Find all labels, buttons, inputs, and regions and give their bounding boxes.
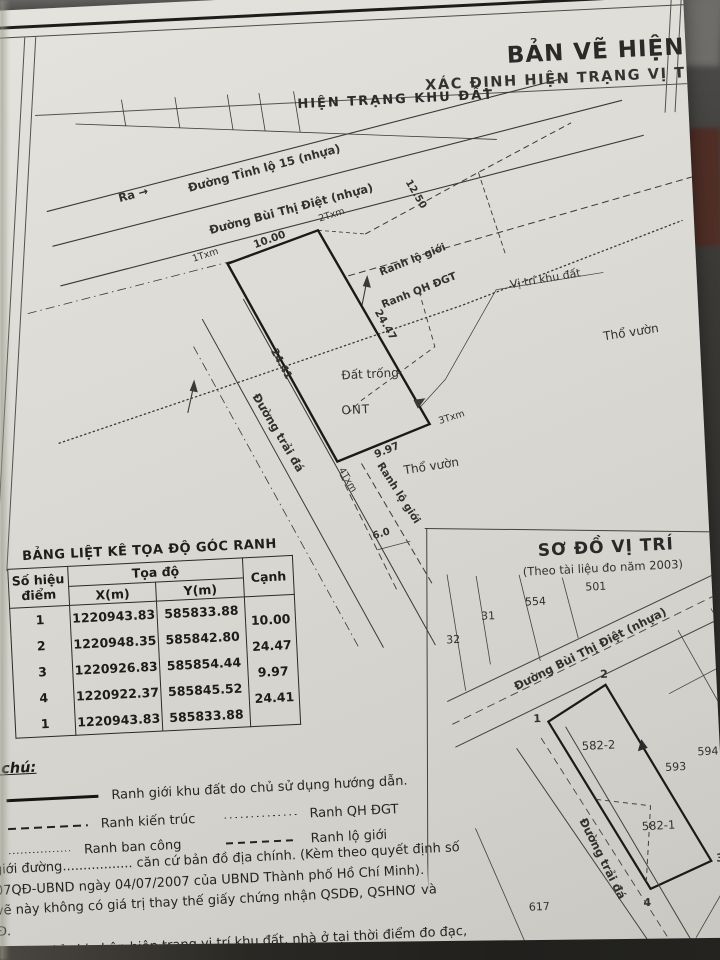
ranh-lo-gioi-label-top: Ranh lộ giới	[378, 241, 448, 278]
dashed-line-swatch	[8, 824, 88, 830]
col-header-edge: Cạnh	[243, 555, 295, 596]
ranh-qh-dgt-label: Ranh QH ĐGT	[380, 270, 459, 311]
map-trai-da-centerline	[541, 732, 684, 960]
legend-item-qh-dgt: Ranh QH ĐGT	[224, 800, 441, 826]
col-header-point: Số hiệu điểm	[8, 566, 69, 608]
plot-corner-1-label: 1Txm	[191, 246, 220, 265]
ont-label: ONT	[341, 402, 370, 417]
corner2-extension	[318, 228, 365, 236]
dim-bottom: 9.97	[373, 440, 402, 461]
direction-arrow-right	[360, 275, 372, 306]
street-label-bui-thi-diet: Đường Bùi Thị Điệt (nhựa)	[208, 180, 375, 237]
map-street-upper	[441, 570, 720, 702]
street-label-tinh-lo-15: Đường Tỉnh lộ 15 (nhựa)	[186, 141, 341, 195]
map-plot-boundary	[547, 680, 713, 893]
long-dash-line-swatch	[226, 839, 298, 845]
map-trai-da-label: Đường trải đá	[576, 816, 629, 902]
tho-vuon-label-right: Thổ vườn	[601, 321, 659, 344]
photo-frame: BẢN VẼ HIỆN XÁC ĐỊNH HIỆN TRẠNG VỊ T HIỆ…	[0, 0, 720, 960]
setback-branch	[478, 171, 505, 255]
ranh-qh-dgt-line	[50, 221, 692, 444]
edge-value: 9.97	[248, 663, 297, 680]
dotted-line-swatch	[225, 814, 297, 819]
street-label-trai-da: Đường trải đá	[250, 391, 308, 475]
dim-right: 24.47	[372, 307, 399, 342]
dat-trong-label: Đất trống	[341, 366, 399, 383]
parcel-582-1-label: 582-1	[641, 818, 675, 834]
map-corner-2: 2	[600, 668, 608, 681]
legend-heading: Ghi chú:	[0, 740, 439, 779]
document-paper: BẢN VẼ HIỆN XÁC ĐỊNH HIỆN TRẠNG VỊ T HIỆ…	[0, 0, 720, 960]
map-corner-4: 4	[643, 896, 652, 909]
edge-value: 24.41	[250, 689, 299, 706]
map-street-label: Đường Bùi Thị Điệt (nhựa)	[512, 605, 669, 694]
dim-setback: 12.50	[403, 178, 429, 211]
background-left-edge	[0, 0, 10, 960]
parcel-32-label: 32	[446, 633, 461, 647]
coords-table: Số hiệu điểm Tọa độ Cạnh X(m) Y(m) 1 122…	[7, 555, 301, 739]
edge-value: 10.00	[246, 611, 295, 628]
parcel-501-label: 501	[585, 580, 607, 594]
parcel-617-label: 617	[529, 900, 551, 914]
map-corner-1: 1	[533, 712, 541, 725]
parcel-582-2-label: 582-2	[581, 737, 615, 753]
road-line-3	[54, 135, 649, 286]
tho-vuon-label-bottom: Thổ vườn	[402, 455, 460, 478]
parcel-ticks	[119, 73, 301, 141]
parcel-554-label: 554	[525, 595, 547, 609]
vi-tri-leader-line	[415, 272, 610, 406]
site-plan-title: HIỆN TRẠNG KHU ĐẤT	[297, 85, 495, 113]
vi-tri-khu-dat-label: Vị trí khu đất	[509, 266, 582, 291]
location-map-title: SƠ ĐỒ VỊ TRÍ	[537, 530, 674, 561]
legend-item-kien-truc: Ranh kiến trúc	[8, 811, 225, 837]
parcel-593-label: 593	[665, 760, 687, 774]
edge-value: 24.47	[247, 637, 296, 654]
edge-values: 10.00 24.47 9.97 24.41	[245, 594, 301, 726]
parcel-594-label: 594	[697, 744, 719, 758]
upper-parcel-lines	[447, 568, 581, 691]
ra-direction-label: Ra →	[117, 184, 150, 205]
fine-dotted-line-swatch	[9, 850, 71, 854]
road-line-2	[47, 100, 628, 246]
plot-corner-2-label: 2Txm	[317, 206, 346, 225]
parcel-31-label: 31	[481, 609, 496, 623]
map-corner-3: 3	[716, 851, 720, 864]
frame-border-top-bold	[0, 0, 688, 31]
solid-line-swatch	[6, 795, 98, 802]
plot-corner-3-label: 3Txm	[437, 408, 466, 427]
map-trai-da-left	[517, 742, 665, 960]
right-parcel-lines	[665, 608, 720, 727]
location-map: SƠ ĐỒ VỊ TRÍ (Theo tài liệu đo năm 2003)…	[410, 506, 720, 960]
